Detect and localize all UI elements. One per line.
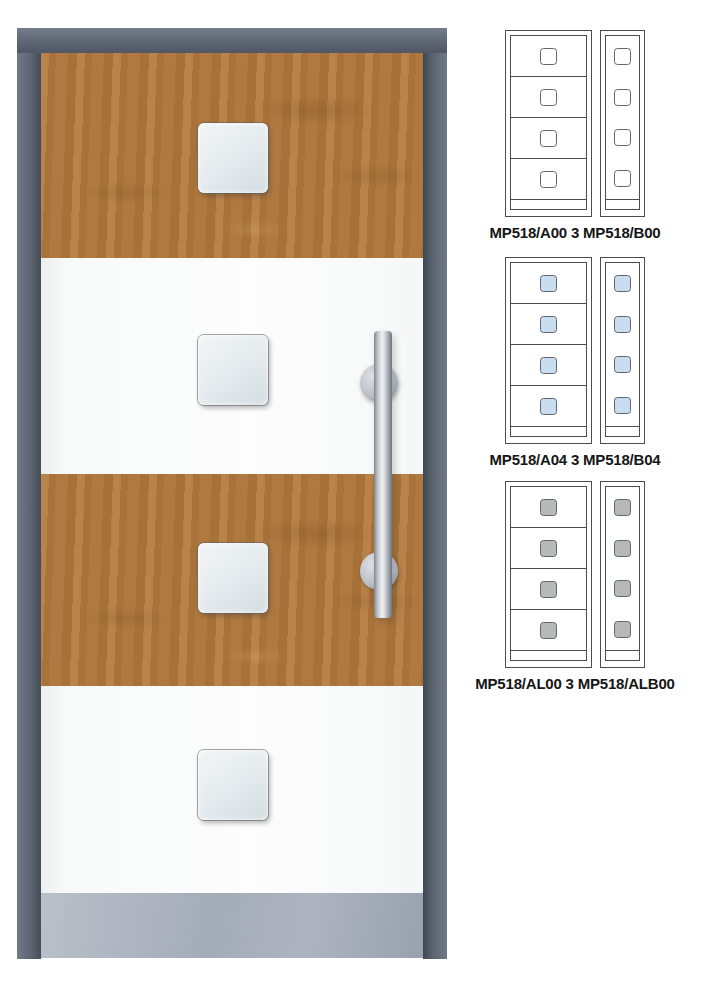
door-frame-top — [17, 28, 447, 53]
glass-square — [614, 580, 631, 597]
variant-door-wide — [505, 481, 592, 668]
bottom-rail — [511, 650, 586, 660]
door-outline — [605, 262, 640, 437]
glass-square — [540, 316, 557, 333]
pull-handle-bar — [374, 331, 392, 618]
glass-square — [540, 48, 557, 65]
glass-square — [540, 398, 557, 415]
glass-square — [614, 540, 631, 557]
door-panel — [511, 385, 586, 426]
variant-label: MP518/A00 3 MP518/B00 — [490, 224, 661, 241]
door-panel — [606, 385, 639, 426]
glass-square — [614, 499, 631, 516]
variant-group: MP518/A00 3 MP518/B00 — [505, 30, 645, 217]
glass-square — [614, 89, 631, 106]
door-panel — [511, 527, 586, 568]
door-outline — [510, 35, 587, 210]
glass-square — [540, 275, 557, 292]
door-panel — [606, 528, 639, 569]
variant-group: MP518/AL00 3 MP518/ALB00 — [505, 481, 645, 668]
door-photo — [17, 28, 447, 959]
variant-door-narrow — [600, 481, 645, 668]
glass-square — [614, 356, 631, 373]
door-panel — [511, 36, 586, 76]
door-panel — [606, 304, 639, 345]
glass-square — [540, 499, 557, 516]
door-panel — [606, 569, 639, 610]
variant-door-narrow — [600, 257, 645, 444]
door-panel — [511, 117, 586, 158]
variant-door-wide — [505, 257, 592, 444]
door-panel — [511, 609, 586, 650]
door-panel — [606, 158, 639, 199]
door-panel — [606, 487, 639, 528]
door-panel — [606, 345, 639, 386]
door-panel — [606, 118, 639, 159]
glass-square — [614, 48, 631, 65]
variant-group: MP518/A04 3 MP518/B04 — [505, 257, 645, 444]
glass-square — [540, 540, 557, 557]
bottom-rail — [606, 426, 639, 436]
door-panel — [511, 158, 586, 199]
bottom-rail — [606, 199, 639, 209]
door-panel — [606, 36, 639, 77]
glass-square — [540, 357, 557, 374]
glass-square — [540, 89, 557, 106]
door-outline — [510, 486, 587, 661]
kick-plate — [41, 893, 423, 958]
door-panel — [511, 303, 586, 344]
door-outline — [605, 35, 640, 210]
glass-square — [614, 275, 631, 292]
bottom-rail — [606, 650, 639, 660]
door-frame-left — [17, 28, 41, 959]
door-panel — [511, 568, 586, 609]
glass-window — [198, 335, 268, 405]
glass-window — [198, 543, 268, 613]
variant-label: MP518/A04 3 MP518/B04 — [490, 451, 661, 468]
glass-square — [614, 170, 631, 187]
glass-window — [198, 750, 268, 820]
variant-diagrams — [505, 481, 645, 668]
door-outline — [605, 486, 640, 661]
door-outline — [510, 262, 587, 437]
door-leaf — [41, 53, 423, 958]
glass-square — [614, 316, 631, 333]
variant-diagrams — [505, 257, 645, 444]
variant-diagrams — [505, 30, 645, 217]
variant-label: MP518/AL00 3 MP518/ALB00 — [475, 675, 674, 692]
glass-square — [540, 171, 557, 188]
glass-square — [614, 397, 631, 414]
door-panel — [606, 263, 639, 304]
catalog-page: MP518/A00 3 MP518/B00 — [0, 0, 711, 1000]
glass-square — [614, 621, 631, 638]
door-frame-right — [423, 28, 447, 959]
door-panel — [511, 487, 586, 527]
bottom-rail — [511, 426, 586, 436]
bottom-rail — [511, 199, 586, 209]
door-panel — [606, 609, 639, 650]
glass-square — [540, 581, 557, 598]
door-panel — [511, 263, 586, 303]
door-panel — [511, 344, 586, 385]
glass-window — [198, 123, 268, 193]
variant-door-wide — [505, 30, 592, 217]
variant-door-narrow — [600, 30, 645, 217]
glass-square — [540, 622, 557, 639]
glass-square — [540, 130, 557, 147]
door-panel — [606, 77, 639, 118]
door-panel — [511, 76, 586, 117]
glass-square — [614, 129, 631, 146]
